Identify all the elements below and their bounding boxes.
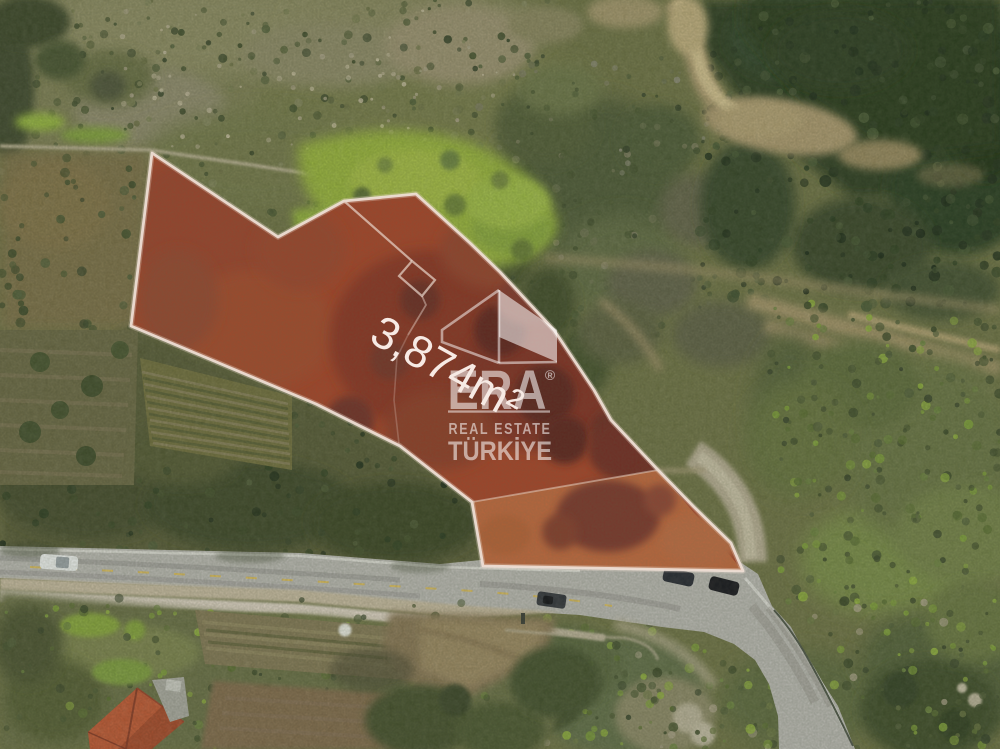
svg-text:®: ®: [545, 367, 556, 383]
svg-text:TÜRKİYE: TÜRKİYE: [448, 436, 552, 466]
